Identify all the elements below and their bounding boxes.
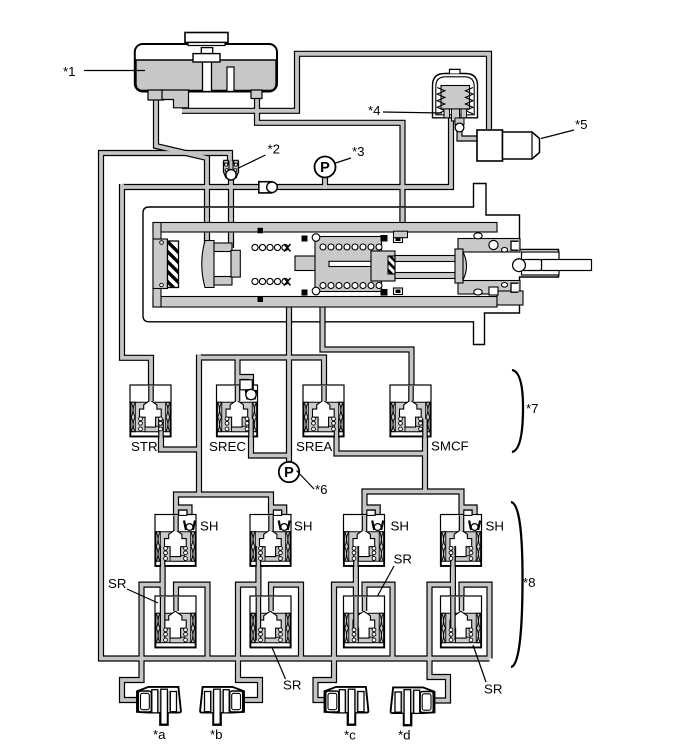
svg-text:STR: STR (131, 439, 158, 454)
svg-text:SR: SR (484, 682, 502, 697)
svg-text:P: P (284, 465, 294, 481)
svg-text:*b: *b (210, 727, 223, 742)
svg-text:*6: *6 (315, 482, 328, 497)
svg-text:*8: *8 (523, 575, 536, 590)
svg-text:P: P (320, 160, 330, 176)
svg-text:*2: *2 (268, 142, 281, 157)
svg-text:*a: *a (153, 727, 166, 742)
svg-text:SR: SR (283, 678, 301, 693)
svg-text:SR: SR (394, 552, 412, 567)
svg-text:SH: SH (486, 519, 504, 534)
svg-text:SH: SH (200, 519, 218, 534)
svg-text:*3: *3 (352, 144, 365, 159)
svg-text:SREC: SREC (209, 439, 246, 454)
svg-text:*4: *4 (368, 103, 381, 118)
svg-text:SMCF: SMCF (431, 439, 469, 454)
svg-text:*c: *c (344, 728, 356, 743)
svg-text:SREA: SREA (296, 439, 332, 454)
svg-text:*d: *d (398, 728, 411, 743)
svg-text:SH: SH (294, 519, 312, 534)
svg-text:*5: *5 (575, 117, 588, 132)
svg-text:*1: *1 (63, 64, 76, 79)
svg-text:SH: SH (391, 519, 409, 534)
svg-text:*7: *7 (526, 401, 539, 416)
svg-text:SR: SR (108, 576, 126, 591)
